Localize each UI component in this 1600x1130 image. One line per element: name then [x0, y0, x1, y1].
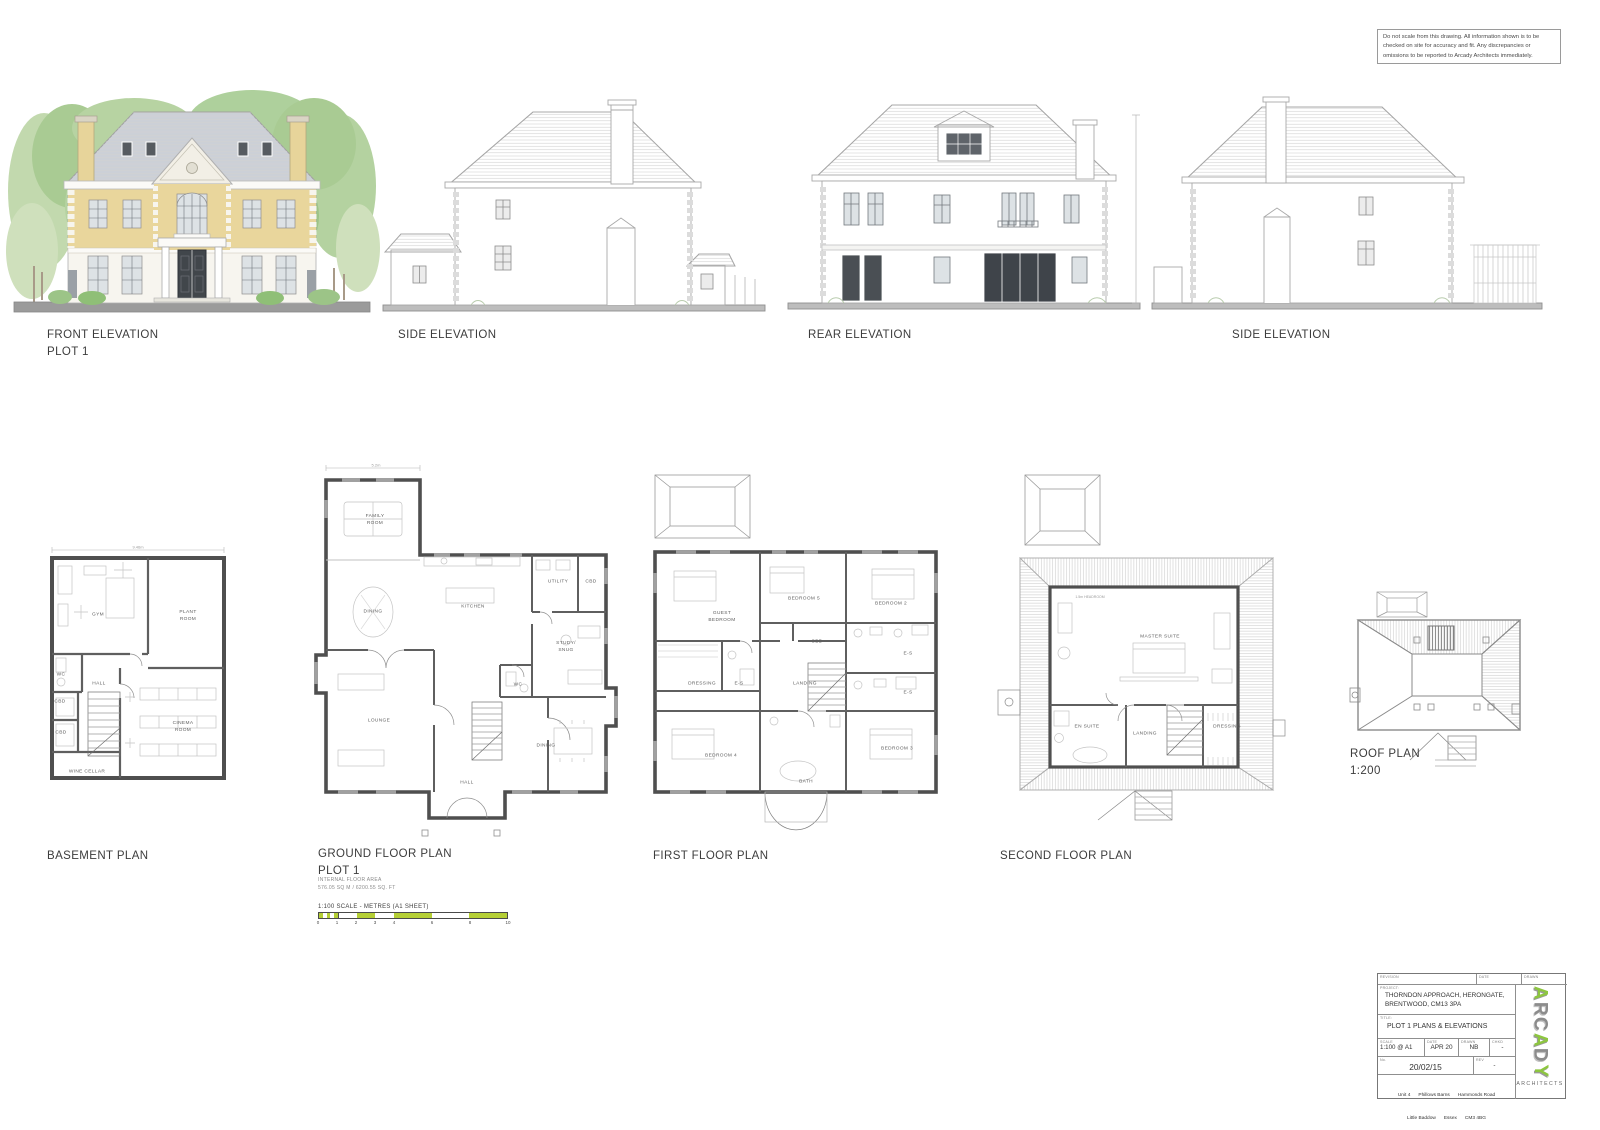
- logo-letter: A: [1532, 986, 1548, 1000]
- room-label: UTILITY: [548, 578, 568, 585]
- first-floor-plan-drawing: [648, 473, 944, 841]
- pergola-structure: [1470, 245, 1540, 303]
- room-label: PLANT ROOM: [173, 609, 203, 623]
- room-label: WC: [514, 681, 523, 688]
- scale-bar-ticks: 01 23 46 810: [318, 920, 508, 928]
- room-label: GUEST BEDROOM: [705, 610, 739, 624]
- basement-dimension: 9.46m: [132, 545, 143, 550]
- room-label: LOUNGE: [368, 717, 390, 724]
- rev-cell: REV -: [1474, 1057, 1516, 1075]
- logo-letter: C: [1532, 1017, 1548, 1031]
- room-label: BATH: [799, 778, 813, 785]
- headroom-note: 1.5m HEADROOM: [1075, 595, 1104, 599]
- scale-bar-label: 1:100 SCALE - METRES (A1 SHEET): [318, 904, 508, 910]
- basement-plan-drawing: [44, 542, 232, 784]
- room-label: WC: [57, 671, 66, 678]
- rear-elevation-label: REAR ELEVATION: [808, 327, 912, 344]
- room-label: WINE CELLAR: [69, 768, 105, 775]
- rooflight-outline: [1025, 475, 1100, 545]
- room-label: CBD: [54, 698, 65, 705]
- title-block: REVISION DATE DRAWN PROJECT: THORNDON AP…: [1377, 973, 1566, 1099]
- room-label: E-S: [734, 680, 743, 687]
- project-line2: BRENTWOOD, CM13 3PA: [1385, 1000, 1515, 1009]
- project-line1: THORNDON APPROACH, HERONGATE,: [1385, 991, 1515, 1000]
- room-label: CBD: [585, 578, 596, 585]
- room-label: GYM: [92, 611, 104, 618]
- address-line1: Unit 4 Phillows Barns Hammonds Road: [1378, 1092, 1515, 1100]
- date-cell: DATE APR 20: [1425, 1039, 1459, 1057]
- scale-bar-graphic: [318, 912, 508, 919]
- room-label: LANDING: [793, 680, 817, 687]
- address-line2: Little Baddow Essex CM3 4BG: [1378, 1115, 1515, 1123]
- arcady-logo: A R C A D Y ARCHITECTS: [1515, 985, 1565, 1100]
- logo-letter: Y: [1532, 1064, 1548, 1077]
- architects-label: ARCHITECTS: [1516, 1081, 1563, 1087]
- logo-letter: D: [1532, 1048, 1548, 1062]
- first-floor-plan-label: FIRST FLOOR PLAN: [653, 848, 768, 865]
- room-label: DINING: [537, 742, 556, 749]
- side-elevation-left-drawing: [383, 100, 765, 313]
- room-label: CINEMA ROOM: [167, 720, 199, 734]
- ridge-dimension-line: [1132, 115, 1140, 303]
- number-cell: No. 20/02/15: [1378, 1057, 1474, 1075]
- room-label: BEDROOM 4: [705, 752, 737, 759]
- room-label: STUDY/ SNUG: [551, 640, 581, 654]
- room-label: E-S: [903, 689, 912, 696]
- rooflight-outline: [655, 475, 750, 538]
- logo-letter: A: [1532, 1032, 1548, 1046]
- side-elevation-right-drawing: [1152, 97, 1542, 313]
- room-label: DRESSING: [688, 680, 716, 687]
- room-label: CBD: [811, 638, 822, 645]
- drawn-header: DRAWN: [1522, 974, 1567, 985]
- date-header: DATE: [1477, 974, 1522, 985]
- second-floor-plan-drawing: [998, 473, 1288, 825]
- address-cell: Unit 4 Phillows Barns Hammonds Road Litt…: [1378, 1075, 1516, 1099]
- roof-plan-label: ROOF PLAN1:200: [1350, 746, 1420, 779]
- room-label: CBD: [55, 729, 66, 736]
- room-label: BEDROOM 3: [881, 745, 913, 752]
- drawn-cell: DRAWN NB: [1459, 1039, 1490, 1057]
- disclaimer-note: Do not scale from this drawing. All info…: [1377, 29, 1561, 64]
- room-label: DRESSING: [1213, 723, 1241, 730]
- side-elevation-left-label: SIDE ELEVATION: [398, 327, 496, 344]
- drawing-title: PLOT 1 PLANS & ELEVATIONS: [1378, 1020, 1515, 1030]
- revision-header: REVISION: [1378, 974, 1477, 985]
- drawing-number: 20/02/15: [1378, 1062, 1473, 1072]
- second-floor-plan-label: SECOND FLOOR PLAN: [1000, 848, 1132, 865]
- room-label: MASTER SUITE: [1140, 633, 1180, 640]
- front-elevation-drawing: [14, 76, 370, 318]
- drawing-sheet: Do not scale from this drawing. All info…: [0, 0, 1600, 1130]
- side-elevation-right-label: SIDE ELEVATION: [1232, 327, 1330, 344]
- room-label: BEDROOM 2: [875, 600, 907, 607]
- room-label: E-S: [903, 650, 912, 657]
- room-label: HALL: [92, 680, 105, 687]
- basement-plan-label: BASEMENT PLAN: [47, 848, 149, 865]
- logo-letter: R: [1532, 1001, 1548, 1015]
- ground-dimension: 5.2m: [372, 463, 381, 468]
- project-cell: PROJECT: THORNDON APPROACH, HERONGATE, B…: [1378, 985, 1516, 1015]
- room-label: LANDING: [1133, 730, 1157, 737]
- roof-plan-drawing: [1350, 590, 1528, 756]
- room-label: EN SUITE: [1075, 723, 1100, 730]
- room-label: FAMILY ROOM: [361, 513, 389, 527]
- ground-floor-plan-label: GROUND FLOOR PLANPLOT 1: [318, 846, 452, 879]
- room-label: KITCHEN: [461, 603, 485, 610]
- scale-bar: 1:100 SCALE - METRES (A1 SHEET) 01 23 46…: [318, 904, 508, 928]
- title-cell: TITLE: PLOT 1 PLANS & ELEVATIONS: [1378, 1015, 1516, 1039]
- scale-cell: SCALE 1:100 @ A1: [1378, 1039, 1425, 1057]
- chkd-cell: CHKD -: [1490, 1039, 1516, 1057]
- floor-area-note: INTERNAL FLOOR AREA576.05 SQ M / 6200.55…: [318, 877, 396, 892]
- front-elevation-label: FRONT ELEVATIONPLOT 1: [47, 327, 158, 360]
- room-label: HALL: [460, 779, 473, 786]
- room-label: DINING: [364, 608, 383, 615]
- room-label: BEDROOM 5: [788, 595, 820, 602]
- rear-elevation-drawing: [788, 97, 1144, 313]
